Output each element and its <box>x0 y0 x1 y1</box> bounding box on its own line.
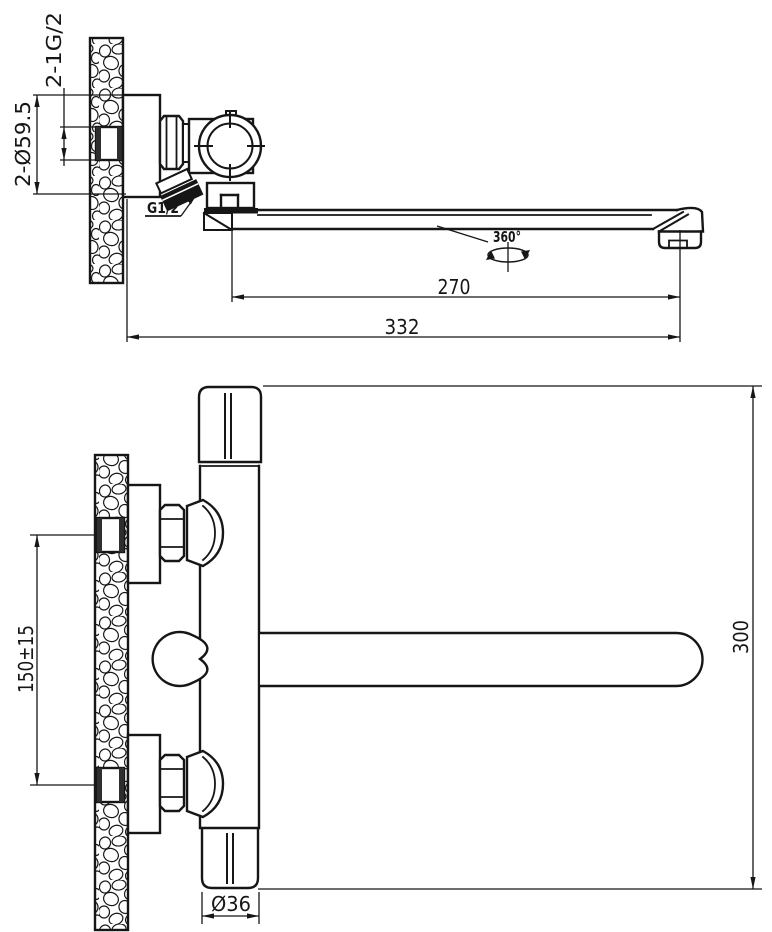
label-wall-threads: 2-1G/2 <box>42 12 66 88</box>
wall-section-front <box>95 455 128 930</box>
pipe-seal-right <box>117 127 122 160</box>
drawing-canvas: 2-Ø59.5 2-1G/2 G1/2 360° 270 332 <box>0 0 772 932</box>
control-knob <box>153 632 208 686</box>
label-inlet-spacing: 150±15 <box>14 625 38 693</box>
bottom-cap <box>202 828 258 888</box>
label-shower-thread: G1/2 <box>147 199 179 217</box>
mounting-flange-lower <box>128 735 160 833</box>
mounting-flange-upper <box>128 485 160 583</box>
label-body-diameter: Ø36 <box>211 892 251 916</box>
label-spout-projection: 270 <box>438 275 471 299</box>
label-overall-depth: 332 <box>385 315 420 339</box>
label-flange-diameter: 2-Ø59.5 <box>11 101 35 187</box>
hex-nut-lower <box>160 755 184 811</box>
pipe-seal-left <box>96 127 101 160</box>
label-rotation: 360° <box>493 228 521 246</box>
label-overall-height: 300 <box>729 620 753 654</box>
spout-front <box>260 633 703 686</box>
hex-nut-top <box>160 116 183 169</box>
technical-drawing: 2-Ø59.5 2-1G/2 G1/2 360° 270 332 <box>0 0 772 932</box>
hex-nut-upper <box>160 505 184 561</box>
mounting-flange-top <box>123 95 160 197</box>
